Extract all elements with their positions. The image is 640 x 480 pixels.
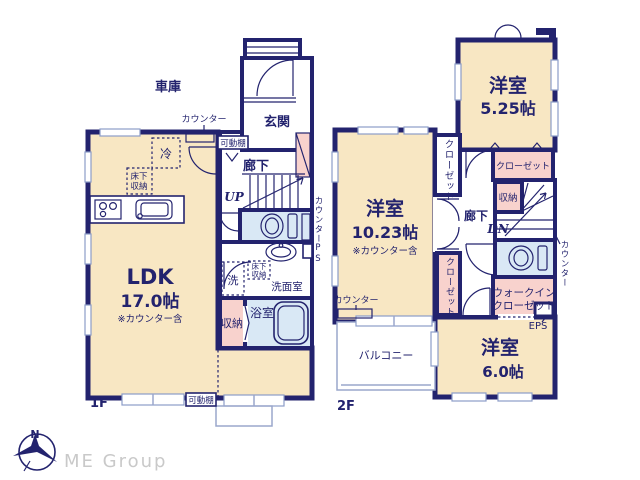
room-a-label: 洋室 (489, 74, 527, 97)
doorway-strip (433, 196, 460, 252)
floor2-label: 2F (337, 399, 355, 414)
closet-a-label: クローゼット (496, 160, 550, 172)
counter-side1-label: カウンター (313, 196, 323, 244)
counter-top-label: カウンター (181, 114, 226, 125)
floorplan-page: 車庫 カウンター 可動棚 玄関 廊下 UP 冷 床下 収納 カウンター PS 床… (0, 0, 640, 480)
compass-north-label: N (30, 428, 39, 441)
fridge-label: 冷 (160, 147, 172, 161)
balcony-label: バルコニー (359, 349, 414, 362)
closet-b-label: クローゼット (443, 139, 455, 202)
terrace (216, 406, 272, 426)
ldk-label: LDK (126, 265, 174, 289)
shelf-top-label: 可動棚 (220, 138, 246, 149)
ldk-size-label: 17.0帖 (121, 291, 180, 312)
hall2-label: 廊下 (464, 208, 488, 223)
underfloor-wash-label-2: 収納 (252, 269, 267, 279)
closet-c-label: クローゼット (444, 257, 455, 317)
roof-window-arc (495, 25, 521, 38)
hall1-label: 廊下 (243, 158, 269, 174)
room-c-label: 洋室 (481, 336, 519, 359)
shoe-cabinet (296, 133, 310, 177)
counter-left-label: カウンター (333, 295, 378, 306)
washer-label: 洗 (228, 274, 239, 287)
ps-label: PS (313, 243, 323, 265)
room-b-size-label: 10.23帖 (352, 223, 419, 242)
dn-label: DN (486, 222, 509, 236)
ps-box (303, 244, 312, 258)
storage1-label: 収納 (221, 317, 243, 330)
underfloor-kitchen-label-1: 床下 (130, 171, 148, 182)
shelf-bottom-label: 可動棚 (188, 395, 214, 406)
wic-label-2: クローゼット (493, 300, 556, 312)
underfloor-kitchen-label-2: 収納 (130, 181, 147, 192)
floor-plan-svg: 車庫 カウンター 可動棚 玄関 廊下 UP 冷 床下 収納 カウンター PS 床… (0, 0, 640, 480)
up-label: UP (224, 190, 244, 204)
bath-label: 浴室 (250, 305, 274, 320)
room-b-label: 洋室 (366, 197, 404, 220)
floor1-label: 1F (90, 396, 108, 411)
room-a-size-label: 5.25帖 (480, 99, 535, 118)
eps-label: EPS (529, 321, 548, 332)
wic-label-1: ウォークイン (493, 287, 556, 299)
floor1-plan: 車庫 カウンター 可動棚 玄関 廊下 UP 冷 床下 収納 カウンター PS 床… (85, 40, 323, 426)
entrance-label: 玄関 (264, 114, 290, 130)
washroom-label: 洗面室 (271, 280, 303, 293)
room-c-size-label: 6.0帖 (482, 363, 524, 381)
floor2-plan: 洋室 5.25帖 クローゼット 収納 DN 廊下 クローゼット 洋室 10.23… (332, 25, 569, 414)
logo-text: ME Group (64, 451, 167, 472)
storage2-label: 収納 (498, 192, 517, 204)
ldk-note-label: ※カウンター含 (118, 313, 183, 325)
garage-label: 車庫 (155, 79, 181, 95)
wic-opening (498, 314, 534, 320)
compass: N (13, 428, 57, 471)
room-b-note-label: ※カウンター含 (353, 245, 418, 257)
counter-side2-label: カウンター (559, 240, 569, 288)
